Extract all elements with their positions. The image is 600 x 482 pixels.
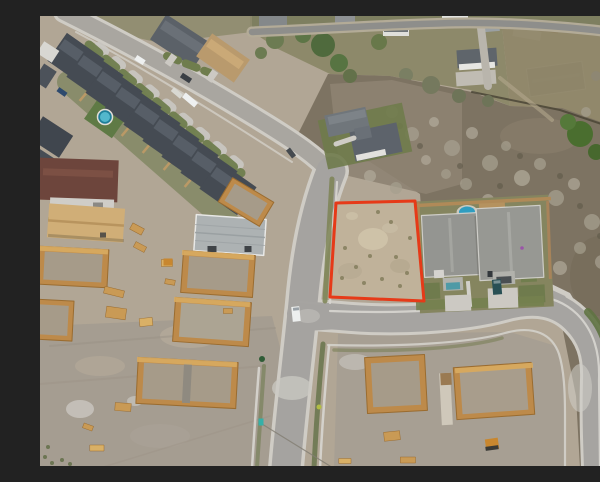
subject-lot-shape xyxy=(343,246,347,250)
lumber-stack xyxy=(90,445,104,451)
house-roof xyxy=(335,16,355,23)
ground-shape xyxy=(75,356,125,376)
utility-box xyxy=(259,419,264,426)
subject-lot-shape xyxy=(389,220,393,224)
ground-shape xyxy=(46,445,50,449)
bare-tree xyxy=(482,155,498,171)
construction-shape xyxy=(371,361,421,407)
scrub-field-shape xyxy=(577,203,583,209)
tree xyxy=(482,95,494,107)
tree xyxy=(343,69,357,83)
scrub-field-shape xyxy=(457,163,463,169)
bare-tree xyxy=(466,127,478,139)
subject-lot-shape xyxy=(362,281,366,285)
subject-lot xyxy=(330,201,424,301)
utility-marker xyxy=(317,405,322,410)
scrub-field-shape xyxy=(497,183,503,189)
tree xyxy=(371,34,387,50)
duplex-shape xyxy=(493,280,500,284)
bare-tree xyxy=(364,170,376,182)
subject-lot-shape xyxy=(368,254,372,258)
teal-garage-door xyxy=(446,282,460,290)
green-tree xyxy=(560,114,576,130)
subject-lot-shape xyxy=(354,265,358,269)
concrete-wash xyxy=(272,376,312,400)
bare-tree xyxy=(534,158,546,170)
bare-tree xyxy=(574,242,586,254)
subject-lot-shape xyxy=(340,276,344,280)
concrete-wash xyxy=(66,400,94,418)
bare-tree xyxy=(421,155,431,165)
bare-tree xyxy=(390,182,402,194)
tree xyxy=(330,54,348,72)
ground-shape xyxy=(50,461,54,465)
ground-shape xyxy=(68,462,72,466)
ground-shape xyxy=(130,424,190,448)
window xyxy=(488,271,493,277)
construction-shape xyxy=(40,304,69,336)
subject-lot-shape xyxy=(382,223,398,233)
bare-tree xyxy=(514,170,530,186)
construction-shape xyxy=(100,233,106,238)
bare-tree xyxy=(581,107,591,117)
bare-tree xyxy=(584,214,600,230)
equipment xyxy=(164,259,173,266)
subject-lot-shape xyxy=(376,210,380,214)
scrub-field-shape xyxy=(417,143,423,149)
roads-shape xyxy=(568,364,592,412)
lumber-stack xyxy=(384,431,401,442)
garage-opening xyxy=(208,246,217,252)
bare-tree xyxy=(460,178,472,190)
scrub-field-shape xyxy=(517,153,523,159)
tree xyxy=(422,76,440,94)
subject-lot-shape xyxy=(405,271,409,275)
duplex xyxy=(414,195,554,314)
construction-shape xyxy=(187,256,249,292)
construction-shape xyxy=(179,303,245,341)
bare-tree xyxy=(429,117,439,127)
subject-lot-shape xyxy=(380,277,384,281)
tree xyxy=(255,47,267,59)
bare-tree xyxy=(568,178,580,190)
house-roof-brown xyxy=(40,158,119,203)
subject-lot-shape xyxy=(390,259,410,273)
finished-homes-shape xyxy=(100,112,110,122)
ground-shape xyxy=(43,455,47,459)
lumber-stack xyxy=(401,457,416,463)
lumber-stack xyxy=(224,309,233,314)
tree xyxy=(311,33,335,57)
aerial-photo xyxy=(40,16,600,466)
construction-shape xyxy=(460,368,529,415)
lumber-stack xyxy=(339,459,351,464)
bare-tree xyxy=(444,140,460,156)
subject-lot-shape xyxy=(358,228,388,250)
entry-porch xyxy=(434,270,444,279)
utility-marker xyxy=(259,356,265,362)
tree xyxy=(452,89,466,103)
construction-shape xyxy=(440,373,452,386)
scrub-field-shape xyxy=(557,173,563,179)
subject-lot-shape xyxy=(346,212,358,220)
bare-tree xyxy=(441,169,451,179)
lumber-stack xyxy=(139,317,153,326)
driveway xyxy=(488,287,519,308)
driveway xyxy=(445,295,472,312)
ground-shape xyxy=(60,458,64,462)
subject-lot-shape xyxy=(398,284,402,288)
yard-object xyxy=(520,246,524,250)
vacant-lot xyxy=(330,201,424,301)
aerial-photo-svg xyxy=(40,16,600,466)
subject-lot-shape xyxy=(394,255,398,259)
vehicles-shape xyxy=(293,307,299,311)
lumber-stack xyxy=(115,402,132,411)
subject-lot-shape xyxy=(408,236,412,240)
bare-tree xyxy=(553,261,567,275)
bare-tree xyxy=(501,141,511,151)
construction-shape xyxy=(43,252,102,283)
garage-opening xyxy=(245,246,252,252)
